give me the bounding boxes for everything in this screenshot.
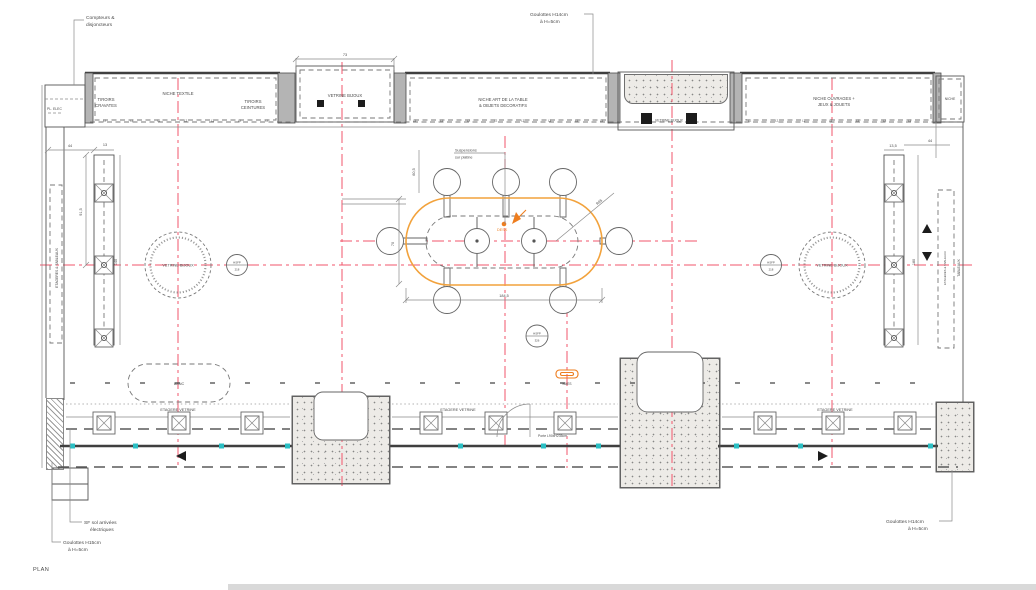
hsfp-left-label: HSFP	[233, 261, 241, 265]
annotation-goulottes-top: Goulottes H14cm à H=5cm	[530, 12, 593, 74]
niche-textile-label: NICHE TEXTILE	[162, 91, 193, 96]
annotation-sf-sol: SF sol arrivées électriques	[70, 428, 117, 533]
plan-title: PLAN	[33, 567, 49, 573]
annotation-compteurs: Compteurs & disjoncteurs	[74, 15, 115, 85]
display-column-left: 44 13 91,5 140	[45, 143, 120, 347]
shelf-tick-label: L2	[802, 119, 806, 123]
display-column-right: 13,5 44 180	[884, 139, 950, 347]
shelf-tick-label: L2	[775, 119, 779, 123]
floor-plan-canvas: 73 TIROIRS CRAVATES NICHE TEXTILE TIROIR…	[0, 0, 1036, 590]
niche-ouvrages-label-1: NICHE OUVRAGES +	[813, 96, 855, 101]
shelf-tick-label: L2	[856, 119, 860, 123]
etagere-vetrine-center-label: ETAGERE VETRINE	[440, 408, 476, 412]
dim-13-5-label: 13,5	[889, 144, 896, 148]
annotation-suspensions-line2: sur platine	[455, 156, 473, 160]
left-wall: ETAGERES & TABLEAUX	[42, 85, 64, 468]
shelf-tick-label: L2	[440, 119, 444, 123]
shelf-tick-label: L2	[157, 119, 161, 123]
shelf-tick-label: L2	[521, 119, 525, 123]
elec-room: PL. ELEC	[45, 85, 85, 127]
desk-area: R95 DESK Suspensions sur platine 184,5 7…	[342, 149, 633, 314]
baes: BAES	[556, 370, 578, 386]
desk-arrowhead-icon	[512, 212, 521, 224]
hsfp-right: HSFP 218	[761, 255, 782, 276]
shelf-tick-label: L2	[238, 119, 242, 123]
niche-tiroirs-cravates-1: TIROIRS	[98, 97, 115, 102]
annotation-compteurs-line1: Compteurs &	[86, 15, 115, 21]
desk-label: DESK	[497, 228, 508, 232]
shelf-tick-label: L2	[600, 119, 604, 123]
shelf-tick-label: L2	[467, 119, 471, 123]
shelf-tick-label: L2	[575, 119, 579, 123]
annotation-sf-sol-line2: électriques	[90, 527, 114, 533]
annotation-goulottes-top-line2: à H=5cm	[540, 19, 560, 25]
dim-180-label: 180	[912, 259, 916, 265]
etagere-vetrine-left-label: ETAGERE VETRINE	[160, 408, 196, 412]
etagere-vetrine-right-label: ETAGERE VETRINE	[817, 408, 853, 412]
top-niche-band: 73 TIROIRS CRAVATES NICHE TEXTILE TIROIR…	[66, 53, 965, 130]
shelf-tick-label: L2	[548, 119, 552, 123]
dim-44r-label: 44	[928, 139, 932, 143]
arrow-down-icon	[922, 252, 932, 261]
hsfp-left: HSFP 218	[227, 255, 248, 276]
shelf-tick-label: L2	[908, 119, 912, 123]
dim-73: 73	[293, 53, 397, 70]
hsfp-center: HSFP 326	[526, 325, 548, 347]
niche-ouvrages-label-2: JEUX & JOUETS	[818, 102, 851, 107]
dim-140-label: 140	[114, 259, 118, 265]
shelf-tick-label: L2	[494, 119, 498, 123]
niche-tiroirs-ceintures-2: CEINTURES	[241, 105, 265, 110]
hsfp-right-label: HSFP	[767, 261, 775, 265]
annotation-goulottes-bottom-right: Goulottes H14cm à H=5cm	[886, 470, 952, 532]
arrow-up-icon	[922, 224, 932, 233]
page-edge-bar	[228, 584, 1036, 590]
dim-44-label: 44	[68, 144, 72, 148]
shelf-tick-label: L2	[413, 119, 417, 123]
niche-right-label: NICHE	[945, 97, 956, 101]
desk-point-icon	[502, 222, 507, 227]
annotation-goulottes-br-line1: Goulottes H14cm	[886, 519, 924, 525]
annotation-goulottes-bl-line1: Goulottes H15cm	[63, 540, 101, 546]
hsfp-right-num: 218	[769, 268, 774, 272]
shelf-tick-label: L2	[103, 119, 107, 123]
hsfp-center-label: HSFP	[533, 332, 541, 336]
dim-60-5-label: 60,5	[412, 168, 416, 175]
etageres-tableaux-left-label: ETAGERES & TABLEAUX	[55, 247, 59, 287]
arrow-right-icon	[818, 451, 828, 461]
annotation-suspensions-line1: Suspensions	[455, 149, 477, 153]
shelf-tick-label: L2	[748, 119, 752, 123]
hsfp-left-num: 218	[235, 268, 240, 272]
etageres-tableaux-right-label: ETAGERES & TABLEAUX	[943, 251, 947, 285]
shelf-band: ETAGERE VETRINE ETAGERE VETRINE ETAGERE …	[58, 404, 958, 467]
niche-tiroirs-ceintures-1: TIROIRS	[245, 99, 262, 104]
shelf-tick-label: L2	[184, 119, 188, 123]
dim-13-label: 13	[103, 143, 107, 147]
porte-label: Porte L90xH235cm	[538, 434, 567, 438]
dim-184-5-label: 184,5	[499, 294, 509, 298]
dim-70-label: 70	[391, 242, 395, 246]
annotation-sf-sol-line1: SF sol arrivées	[84, 520, 117, 526]
niche-art-label-2: & OBJETS DECORATIFS	[479, 103, 527, 108]
annotation-goulottes-br-line2: à H=5cm	[908, 526, 928, 532]
shelf-tick-label: L2	[265, 119, 269, 123]
shelf-tick-label: L2	[130, 119, 134, 123]
tableaux-label: TABLEAUX	[957, 259, 961, 277]
vetrine-circle-right-label: VETRINE BIJOUX	[816, 264, 848, 268]
vetrine-circle-left-label: VETRINE BIJOUX	[162, 264, 194, 268]
shelf-tick-label: L2	[829, 119, 833, 123]
annotation-compteurs-line2: disjoncteurs	[86, 22, 113, 28]
vetrine-bijoux-center-label: VETRINE BIJOUX	[655, 119, 684, 123]
dim-73-label: 73	[343, 53, 347, 57]
dim-91-5-label: 91,5	[79, 208, 83, 215]
hsfp-center-num: 326	[535, 339, 540, 343]
shelf-pillars	[93, 412, 916, 434]
pl-elec-label: PL. ELEC	[47, 107, 62, 111]
shelf-tick-label: L2	[211, 119, 215, 123]
vetrine-bijoux-left-label: VETRINE BIJOUX	[328, 93, 363, 98]
annotation-goulottes-bl-line2: à H=5cm	[68, 547, 88, 553]
right-wall: ETAGERES & TABLEAUX TABLEAUX	[922, 122, 963, 402]
plan-drawing: 73 TIROIRS CRAVATES NICHE TEXTILE TIROIR…	[0, 0, 1036, 590]
niche-tiroirs-cravates-2: CRAVATES	[95, 103, 117, 108]
niche-art-label-1: NICHE ART DE LA TABLE	[478, 97, 527, 102]
annotation-goulottes-bottom-left: Goulottes H15cm à H=5cm	[52, 462, 101, 553]
annotation-goulottes-top-line1: Goulottes H14cm	[530, 12, 568, 18]
shelf-tick-label: L2	[883, 119, 887, 123]
